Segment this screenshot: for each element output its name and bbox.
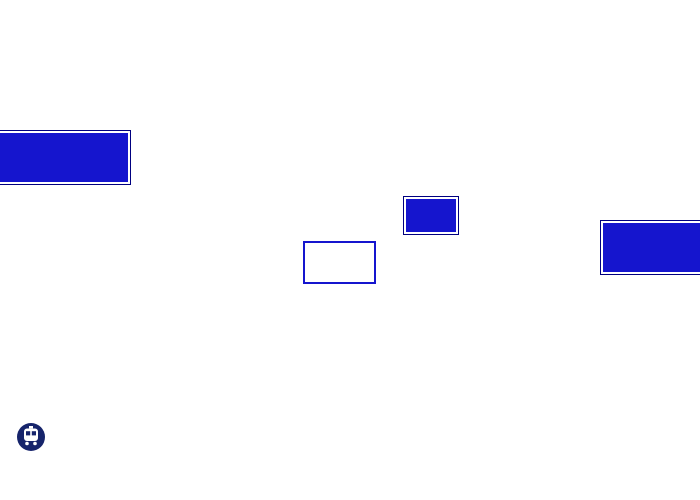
- hotel-sur-callout: [404, 197, 458, 234]
- pedestrian-zone-callout: [303, 241, 376, 284]
- from-almeria-callout: [601, 221, 700, 274]
- train-station-icon: [16, 422, 46, 457]
- city-map: [0, 0, 700, 500]
- from-airport-callout: [0, 131, 130, 184]
